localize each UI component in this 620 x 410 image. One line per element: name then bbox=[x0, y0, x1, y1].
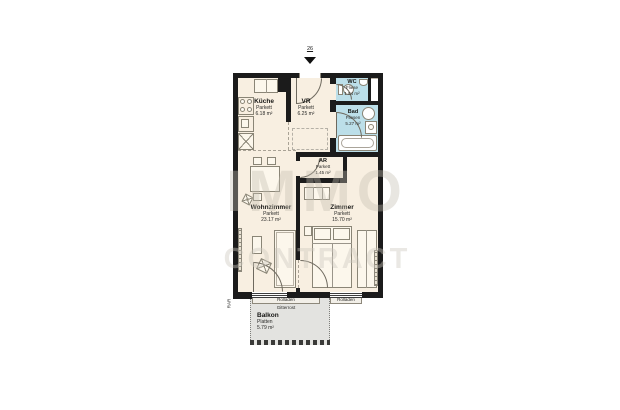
room-area: 5.79 m² bbox=[257, 326, 301, 332]
wall-bottom-c bbox=[362, 292, 383, 298]
kitchen-counter-divider bbox=[266, 79, 267, 93]
floorplan-canvas: 26 bbox=[0, 0, 620, 410]
bad-door-leaf bbox=[336, 112, 337, 138]
bathtub-inner bbox=[341, 138, 374, 148]
watermark-immo: IMMO bbox=[222, 158, 412, 225]
nightstand bbox=[304, 226, 312, 236]
pillow bbox=[333, 228, 350, 240]
gitterrost-label: Gitterrost bbox=[252, 305, 320, 310]
room-area: 5.27 m² bbox=[338, 121, 368, 126]
rar-label: RAR bbox=[227, 294, 232, 314]
kitchen-sink-basin bbox=[241, 119, 249, 128]
watermark-contract: CONTRACT bbox=[218, 243, 416, 276]
wall-kitchen-shaft bbox=[278, 78, 286, 92]
wall-wohn-zimmer-stub bbox=[296, 288, 300, 292]
room-area: 6.18 m² bbox=[240, 112, 288, 118]
open-boundary-kueche-wohnzimmer bbox=[238, 150, 296, 151]
wall-wc-bad bbox=[336, 101, 378, 105]
rolladen-door-label: Rolladen bbox=[252, 297, 320, 302]
room-area: 1.84 m² bbox=[336, 91, 368, 96]
pillow bbox=[314, 228, 331, 240]
wall-bad-bottom bbox=[296, 152, 378, 157]
room-label-bad: Bad Fliesen 5.27 m² bbox=[338, 109, 368, 126]
zimmer-window-line bbox=[330, 295, 362, 296]
room-label-wc: WC Fliese 1.84 m² bbox=[336, 79, 368, 96]
room-label-balkon: Balkon Platten 5.79 m² bbox=[257, 312, 301, 331]
balcony-railing bbox=[250, 340, 330, 345]
wall-bottom-a bbox=[233, 292, 252, 299]
open-boundary-kueche-vr bbox=[288, 122, 289, 150]
entrance-number: 26 bbox=[300, 46, 320, 52]
entrance-arrow-icon bbox=[304, 57, 316, 64]
room-label-kueche: Küche Parkett 6.18 m² bbox=[240, 98, 288, 117]
room-area: 6.25 m² bbox=[288, 112, 324, 118]
rolladen-window-label: Rolladen bbox=[330, 297, 362, 302]
washing-machine-drum-icon bbox=[368, 124, 374, 130]
vr-dashed-outline bbox=[292, 128, 328, 150]
entrance-threshold bbox=[299, 73, 321, 78]
balcony-door-glazing-line bbox=[252, 295, 287, 296]
wall-wc-shaft bbox=[368, 78, 371, 101]
dishwasher-icon bbox=[238, 133, 254, 150]
room-label-vr: VR Parkett 6.25 m² bbox=[288, 98, 324, 117]
